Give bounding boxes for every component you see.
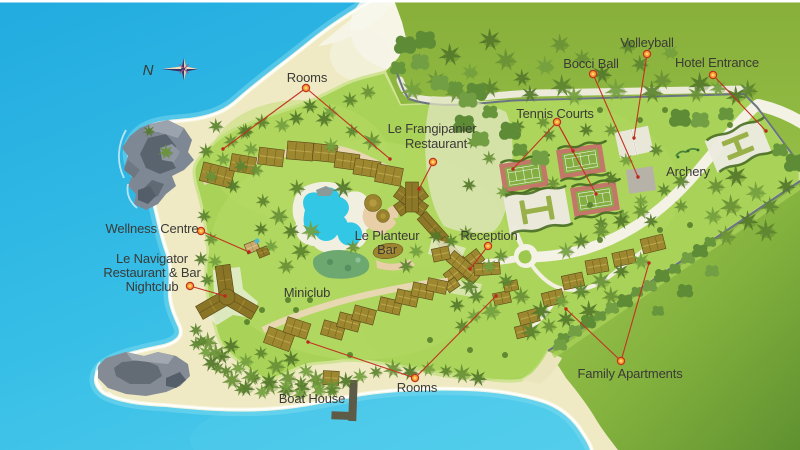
svg-text:Wellness Centre: Wellness Centre — [106, 221, 199, 236]
svg-text:Le Frangipanier: Le Frangipanier — [388, 121, 478, 136]
svg-text:Miniclub: Miniclub — [284, 285, 330, 300]
svg-text:Volleyball: Volleyball — [620, 35, 674, 50]
svg-text:Rooms: Rooms — [397, 380, 438, 395]
svg-text:Family Apartments: Family Apartments — [577, 366, 683, 381]
svg-text:Rooms: Rooms — [287, 70, 328, 85]
svg-text:Tennis Courts: Tennis Courts — [516, 106, 594, 121]
svg-text:Bar: Bar — [377, 242, 398, 257]
svg-text:Restaurant & Bar: Restaurant & Bar — [103, 265, 201, 280]
svg-text:Boat House: Boat House — [279, 391, 345, 406]
svg-text:N: N — [143, 62, 154, 79]
svg-text:Restaurant: Restaurant — [405, 136, 468, 151]
svg-text:Reception: Reception — [460, 228, 517, 243]
svg-text:Nightclub: Nightclub — [126, 279, 179, 294]
svg-text:Le Planteur: Le Planteur — [355, 228, 421, 243]
svg-text:Le Navigator: Le Navigator — [116, 251, 189, 266]
svg-text:Bocci Ball: Bocci Ball — [563, 56, 619, 71]
svg-text:Hotel Entrance: Hotel Entrance — [675, 55, 759, 70]
svg-text:Archery: Archery — [666, 164, 710, 179]
